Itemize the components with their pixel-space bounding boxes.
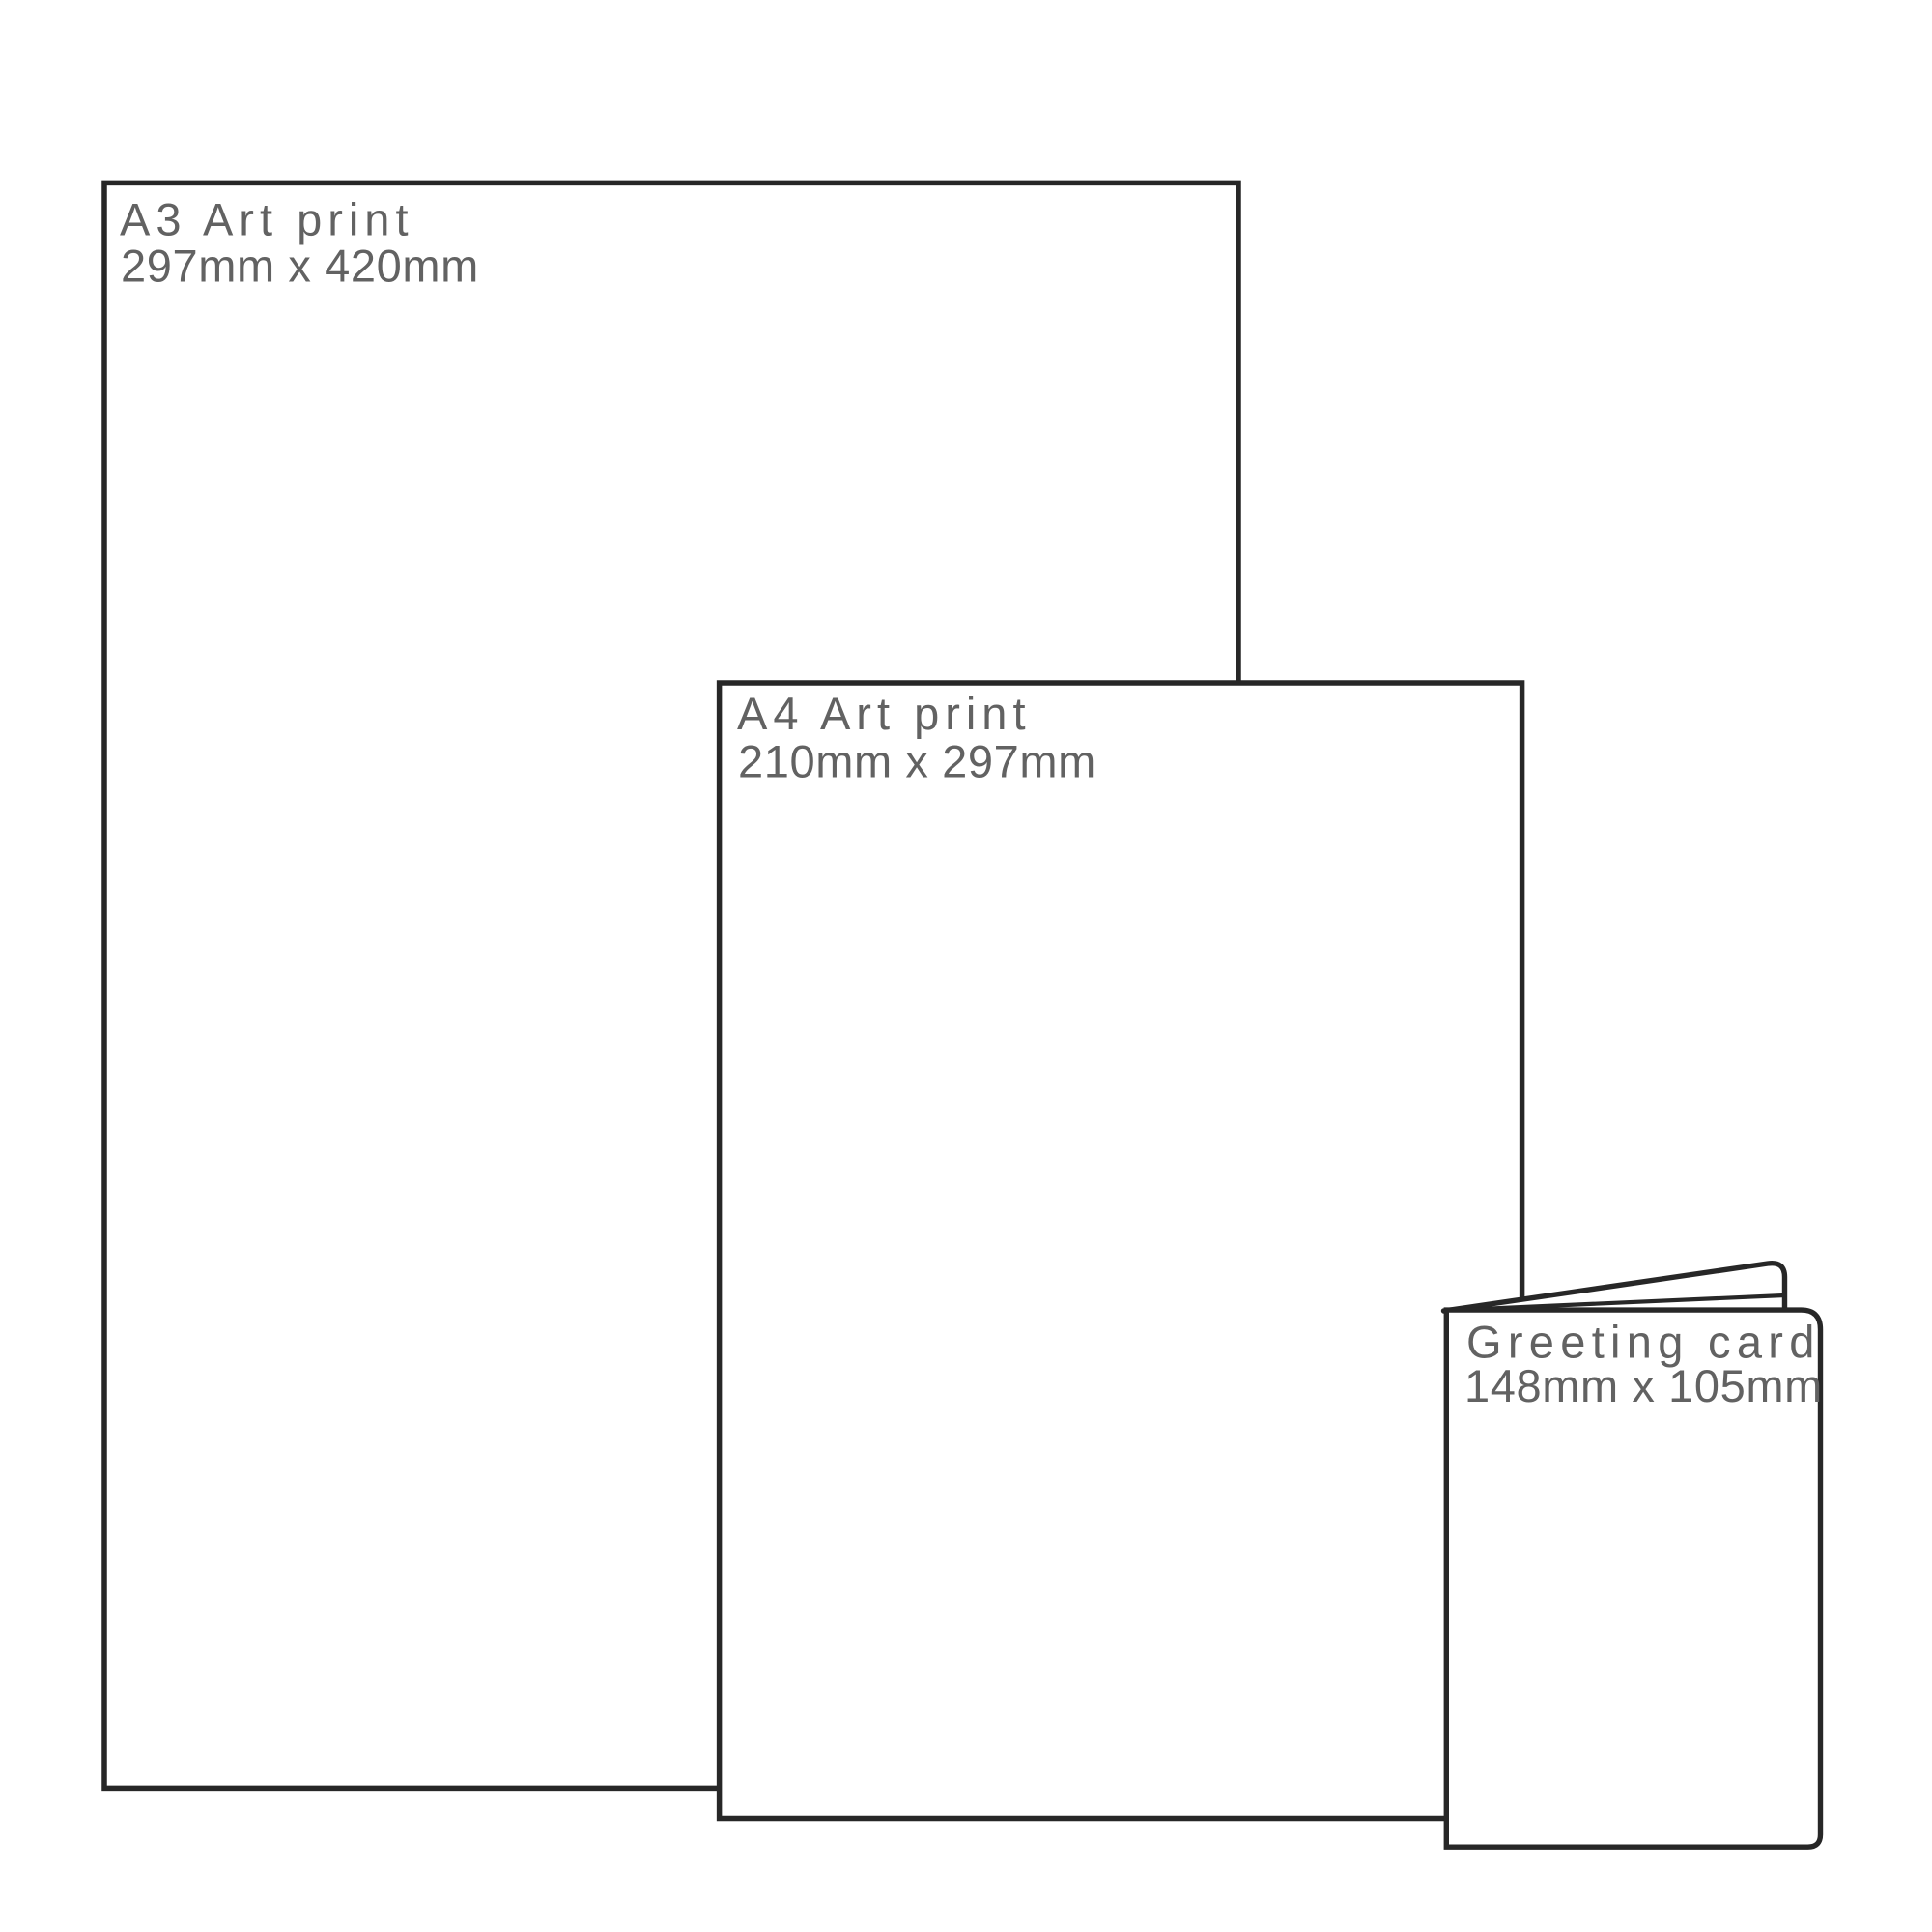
svg-text:210mm x 297mm: 210mm x 297mm [738, 736, 1096, 787]
svg-text:297mm x 420mm: 297mm x 420mm [121, 240, 479, 291]
svg-text:148mm x 105mm: 148mm x 105mm [1464, 1360, 1823, 1411]
svg-text:A4 Art print: A4 Art print [737, 688, 1032, 739]
svg-text:A3 Art print: A3 Art print [120, 194, 414, 245]
